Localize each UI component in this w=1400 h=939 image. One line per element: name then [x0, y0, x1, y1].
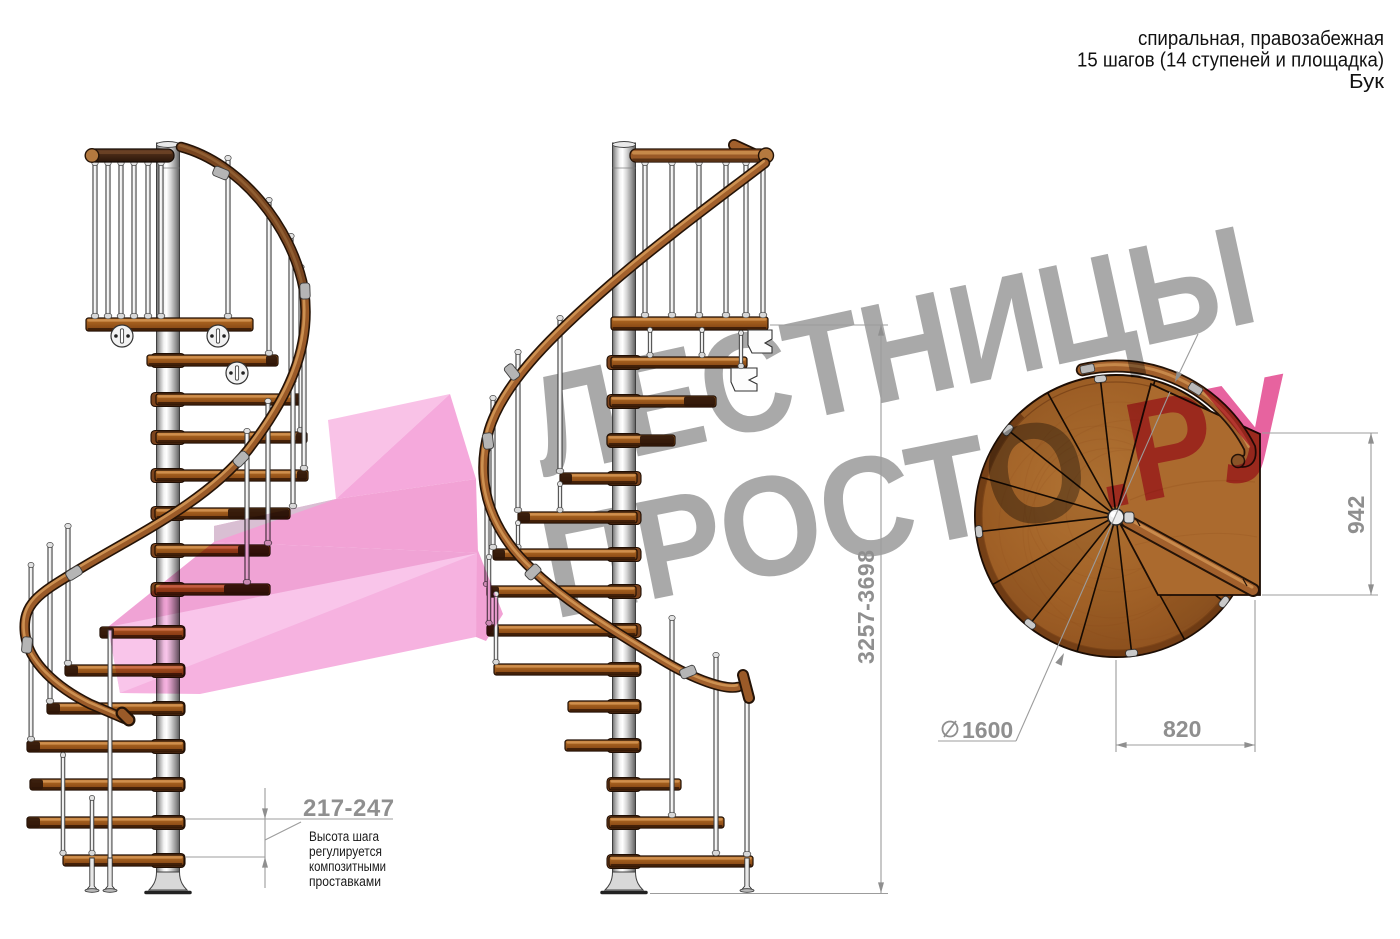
- svg-text:942: 942: [1343, 496, 1369, 534]
- svg-text:3257-3698: 3257-3698: [853, 550, 879, 665]
- svg-text:проставками: проставками: [309, 874, 381, 889]
- svg-text:Высота шага: Высота шага: [309, 829, 379, 844]
- svg-text:композитными: композитными: [309, 859, 386, 874]
- svg-text:1600: 1600: [962, 717, 1013, 743]
- svg-text:спиральная, правозабежная: спиральная, правозабежная: [1138, 28, 1384, 50]
- svg-text:217-247: 217-247: [303, 795, 395, 822]
- svg-text:820: 820: [1163, 716, 1201, 742]
- svg-text:регулируется: регулируется: [309, 844, 382, 859]
- svg-text:Бук: Бук: [1349, 71, 1384, 93]
- svg-text:15 шагов (14 ступеней и площад: 15 шагов (14 ступеней и площадка): [1077, 50, 1384, 72]
